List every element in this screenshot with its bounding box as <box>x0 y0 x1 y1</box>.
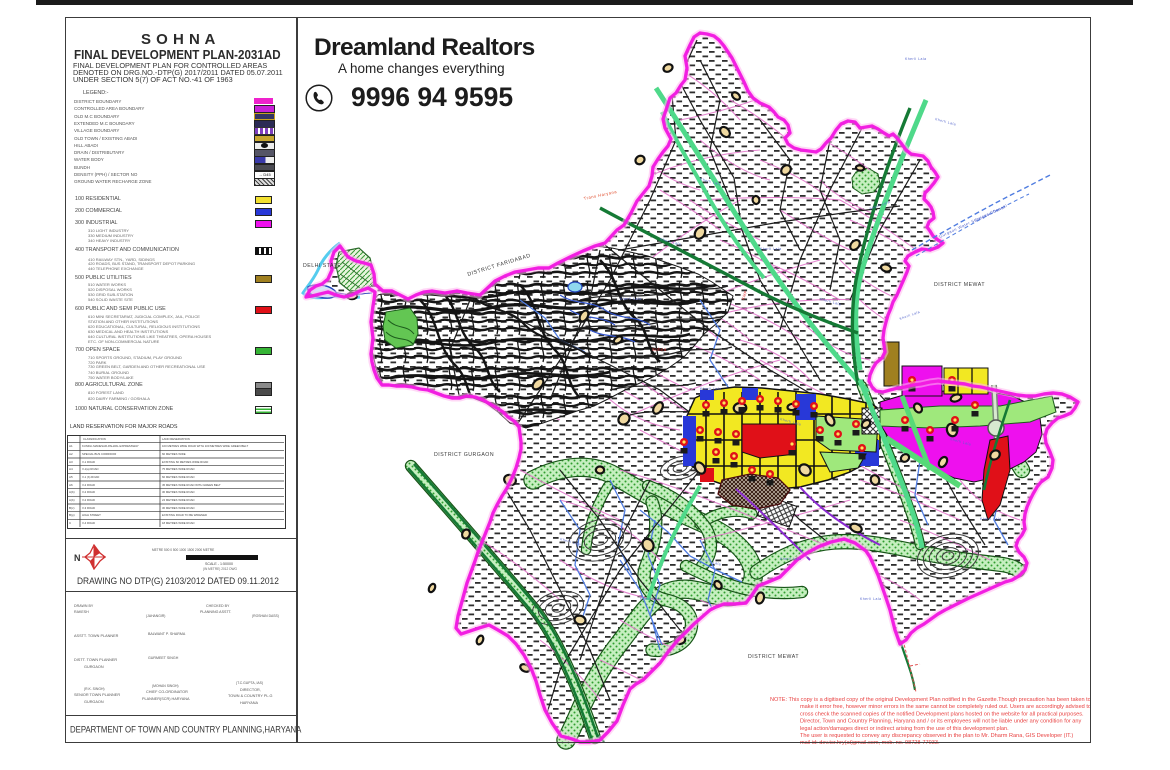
svg-text:N: N <box>74 553 81 563</box>
